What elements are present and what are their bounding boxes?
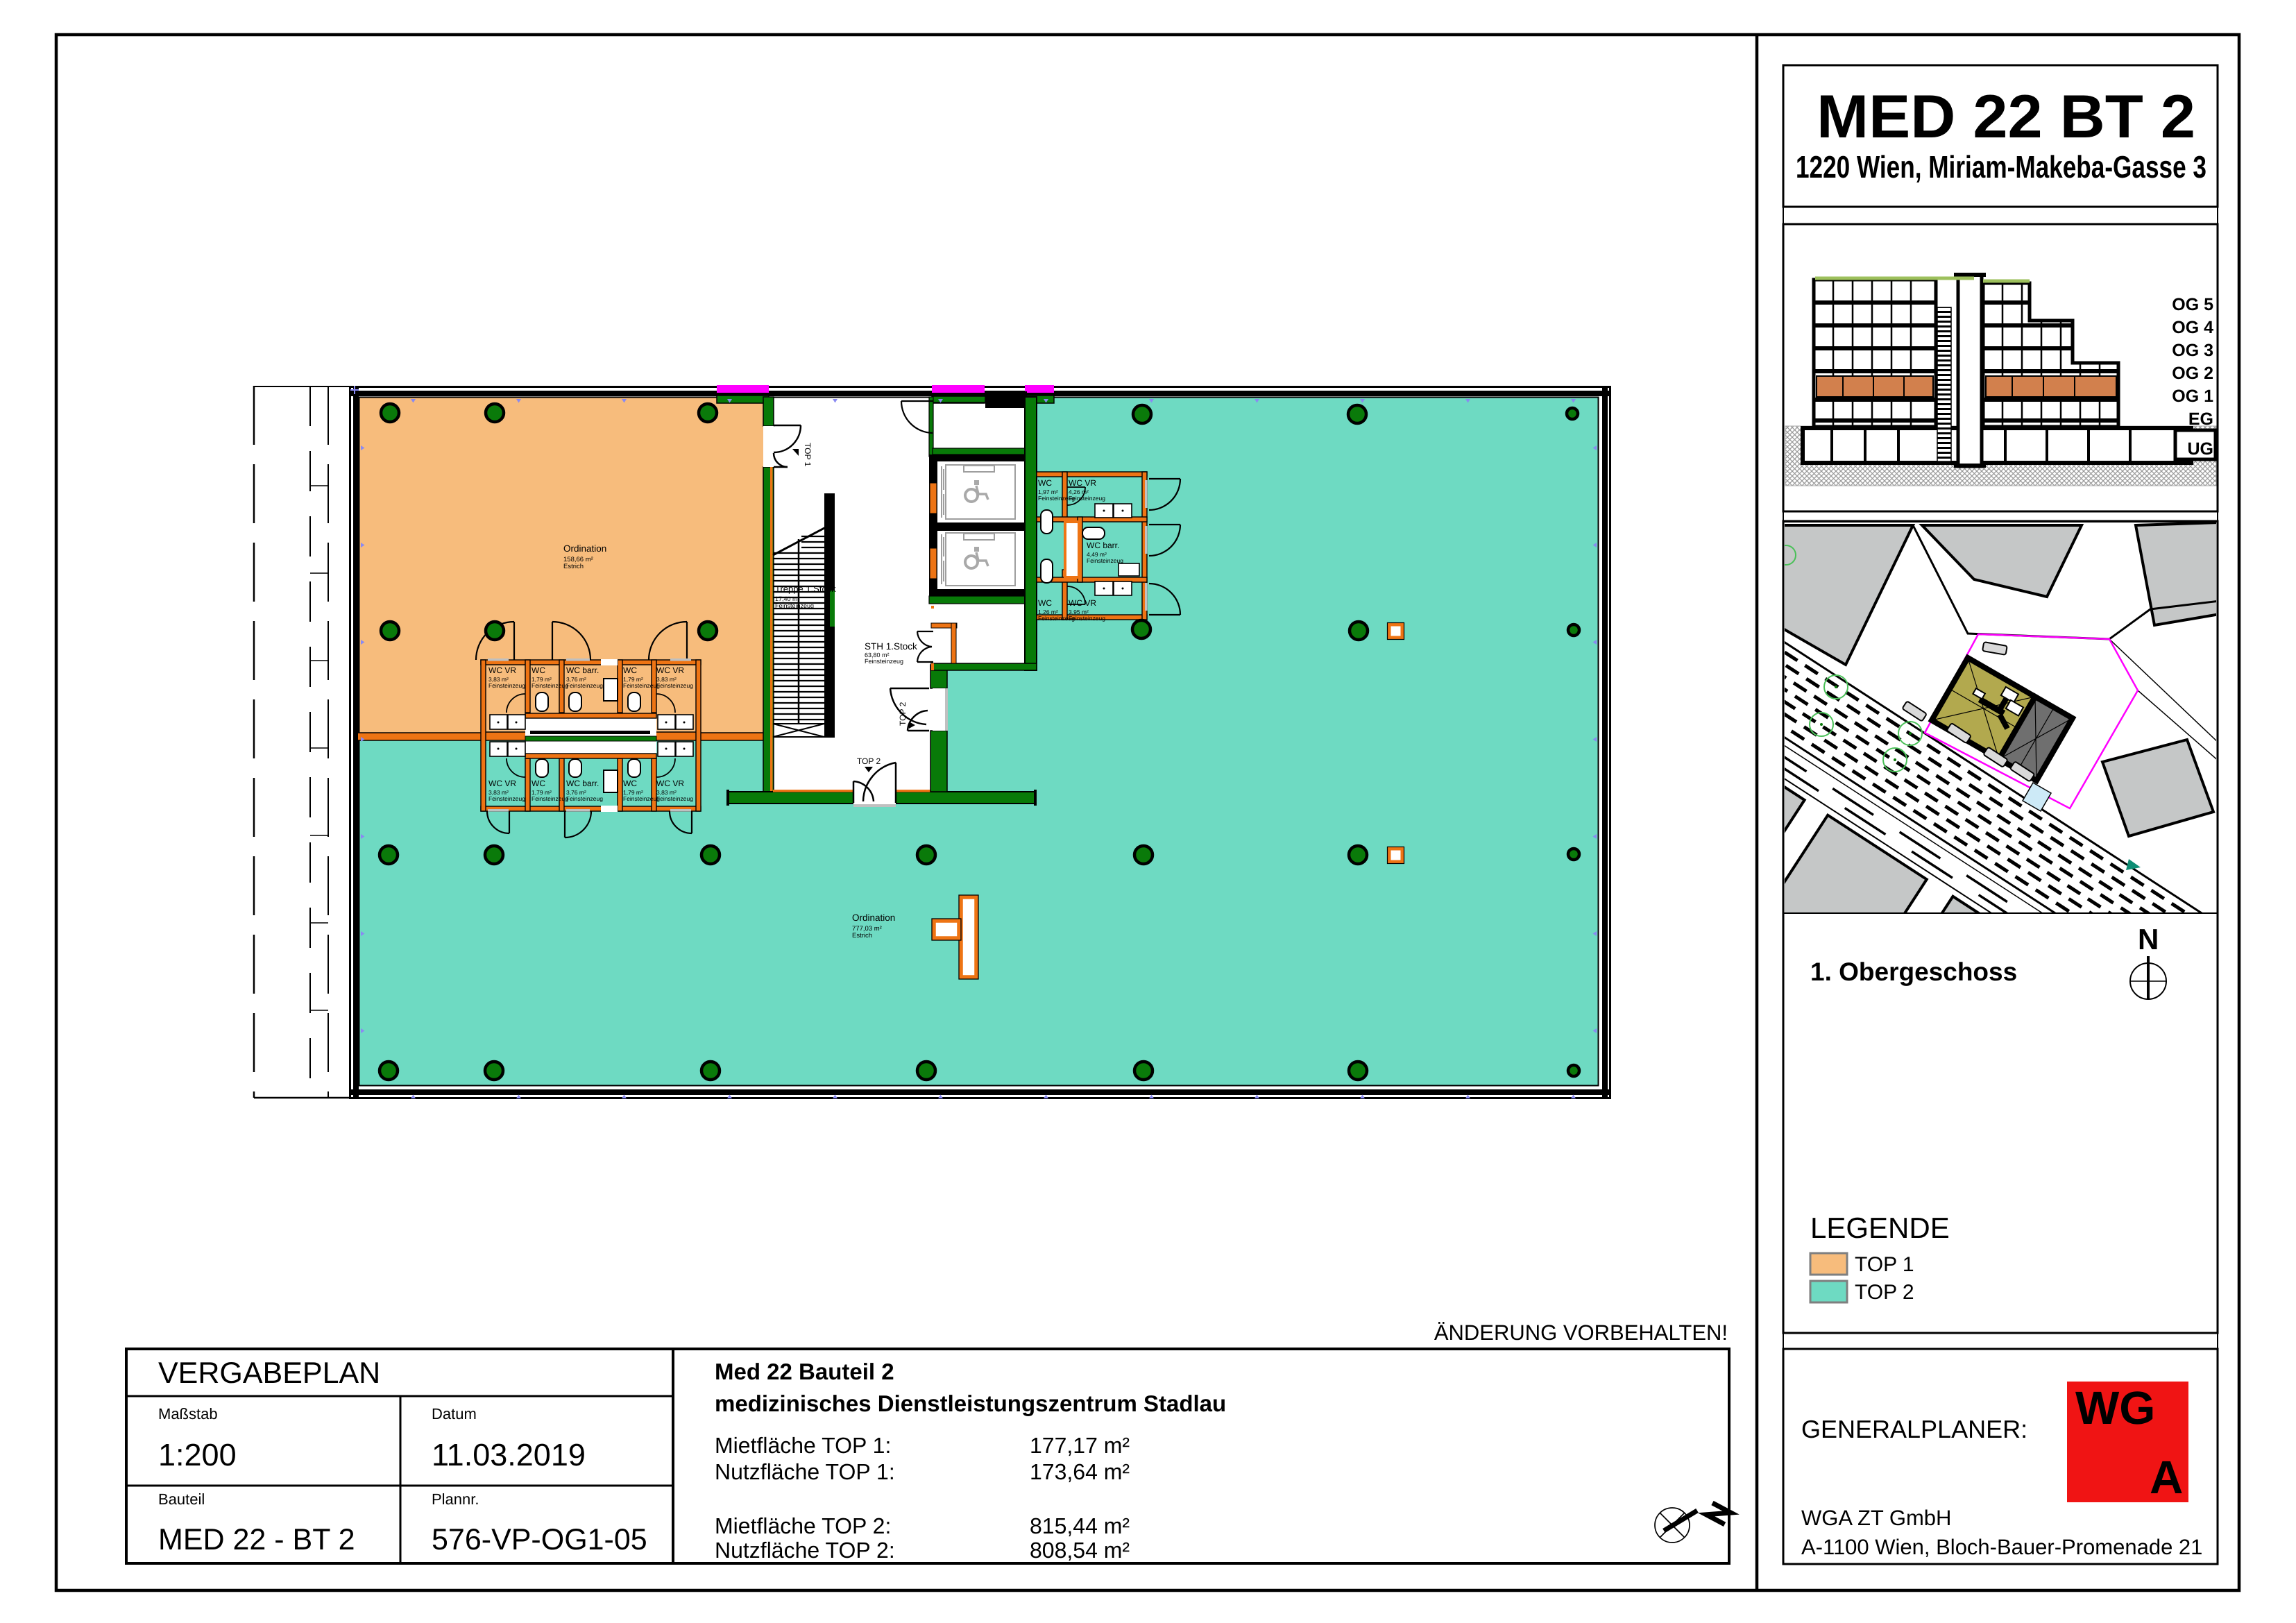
svg-text:Feinsteinzeug: Feinsteinzeug bbox=[1069, 615, 1105, 622]
svg-text:STH 1.Stock: STH 1.Stock bbox=[865, 641, 917, 652]
svg-text:Feinsteinzeug: Feinsteinzeug bbox=[1069, 495, 1105, 502]
svg-text:WC VR: WC VR bbox=[656, 665, 684, 675]
svg-text:WC: WC bbox=[532, 779, 545, 788]
svg-text:WC VR: WC VR bbox=[488, 665, 516, 675]
svg-text:TOP 2: TOP 2 bbox=[898, 702, 908, 726]
svg-text:Maßstab: Maßstab bbox=[158, 1405, 218, 1422]
svg-text:17,40 m²: 17,40 m² bbox=[775, 595, 800, 602]
svg-text:11.03.2019: 11.03.2019 bbox=[432, 1437, 586, 1472]
svg-text:Feinsteinzeug: Feinsteinzeug bbox=[566, 795, 603, 802]
svg-text:Ordination: Ordination bbox=[852, 912, 895, 923]
svg-text:Feinsteinzeug: Feinsteinzeug bbox=[656, 682, 693, 689]
svg-text:1220 Wien, Miriam-Makeba-Gasse: 1220 Wien, Miriam-Makeba-Gasse 3 bbox=[1796, 149, 2206, 185]
svg-text:Plannr.: Plannr. bbox=[432, 1490, 479, 1508]
svg-text:177,17 m²: 177,17 m² bbox=[1030, 1433, 1130, 1458]
svg-text:576-VP-OG1-05: 576-VP-OG1-05 bbox=[432, 1523, 647, 1556]
svg-text:TOP 1: TOP 1 bbox=[1855, 1253, 1914, 1276]
svg-text:Estrich: Estrich bbox=[563, 563, 584, 570]
svg-text:Treppe 1.Stock: Treppe 1.Stock bbox=[775, 584, 836, 594]
svg-text:UG: UG bbox=[2188, 439, 2214, 459]
svg-text:Feinsteinzeug: Feinsteinzeug bbox=[656, 795, 693, 802]
svg-text:WG: WG bbox=[2075, 1382, 2155, 1434]
svg-text:TOP 2: TOP 2 bbox=[1855, 1281, 1914, 1304]
svg-text:WC: WC bbox=[532, 665, 545, 675]
svg-text:WC barr.: WC barr. bbox=[566, 779, 599, 788]
svg-text:A-1100 Wien, Bloch-Bauer-Prome: A-1100 Wien, Bloch-Bauer-Promenade 21 bbox=[1801, 1535, 2202, 1559]
svg-text:Nutzfläche TOP 2:: Nutzfläche TOP 2: bbox=[715, 1538, 895, 1563]
svg-text:WC VR: WC VR bbox=[488, 779, 516, 788]
svg-text:OG 5: OG 5 bbox=[2172, 295, 2213, 314]
svg-text:WC: WC bbox=[623, 665, 637, 675]
svg-text:ÄNDERUNG VORBEHALTEN!: ÄNDERUNG VORBEHALTEN! bbox=[1434, 1320, 1728, 1345]
svg-text:Bauteil: Bauteil bbox=[158, 1490, 205, 1508]
svg-text:OG 4: OG 4 bbox=[2172, 318, 2213, 337]
svg-text:TOP 2: TOP 2 bbox=[857, 756, 881, 766]
svg-text:WC barr.: WC barr. bbox=[566, 665, 599, 675]
svg-text:WC VR: WC VR bbox=[1069, 478, 1096, 488]
svg-text:N: N bbox=[2138, 923, 2159, 955]
svg-text:Feinsteinzeug: Feinsteinzeug bbox=[566, 682, 603, 689]
svg-text:WC barr.: WC barr. bbox=[1087, 541, 1119, 550]
svg-text:WGA ZT GmbH: WGA ZT GmbH bbox=[1801, 1506, 1951, 1530]
svg-text:medizinisches Dienstleistungsz: medizinisches Dienstleistungszentrum Sta… bbox=[715, 1391, 1226, 1416]
svg-text:OG 1: OG 1 bbox=[2172, 386, 2213, 406]
svg-text:1:200: 1:200 bbox=[158, 1437, 237, 1472]
svg-text:WC VR: WC VR bbox=[1069, 598, 1096, 608]
svg-text:Mietfläche TOP 1:: Mietfläche TOP 1: bbox=[715, 1433, 891, 1458]
svg-text:Feinsteinzeug: Feinsteinzeug bbox=[532, 682, 568, 689]
svg-text:Feinsteinzeug: Feinsteinzeug bbox=[1087, 557, 1123, 564]
svg-text:LEGENDE: LEGENDE bbox=[1810, 1212, 1950, 1244]
svg-text:815,44 m²: 815,44 m² bbox=[1030, 1513, 1130, 1538]
svg-text:808,54 m²: 808,54 m² bbox=[1030, 1538, 1130, 1563]
svg-text:Med 22 Bauteil 2: Med 22 Bauteil 2 bbox=[715, 1359, 894, 1384]
svg-text:1. Obergeschoss: 1. Obergeschoss bbox=[1810, 958, 2017, 986]
svg-text:Feinsteinzeug: Feinsteinzeug bbox=[623, 795, 660, 802]
svg-text:MED 22 - BT 2: MED 22 - BT 2 bbox=[158, 1523, 355, 1556]
svg-text:MED 22 BT 2: MED 22 BT 2 bbox=[1817, 82, 2195, 151]
svg-text:Datum: Datum bbox=[432, 1405, 477, 1422]
svg-text:WC VR: WC VR bbox=[656, 779, 684, 788]
svg-text:VERGABEPLAN: VERGABEPLAN bbox=[158, 1357, 380, 1390]
svg-text:Feinsteinzeug: Feinsteinzeug bbox=[488, 795, 525, 802]
svg-text:Feinsteinzeug: Feinsteinzeug bbox=[775, 602, 814, 609]
svg-text:TOP 1: TOP 1 bbox=[803, 443, 813, 467]
svg-text:Nutzfläche TOP 1:: Nutzfläche TOP 1: bbox=[715, 1459, 895, 1484]
svg-text:Estrich: Estrich bbox=[852, 932, 872, 940]
svg-text:GENERALPLANER:: GENERALPLANER: bbox=[1801, 1415, 2027, 1443]
svg-text:WC: WC bbox=[1038, 598, 1052, 608]
svg-text:OG 2: OG 2 bbox=[2172, 364, 2213, 383]
svg-text:Feinsteinzeug: Feinsteinzeug bbox=[865, 658, 903, 665]
svg-text:EG: EG bbox=[2188, 409, 2213, 429]
svg-text:Feinsteinzeug: Feinsteinzeug bbox=[532, 795, 568, 802]
svg-text:WC: WC bbox=[1038, 478, 1052, 488]
svg-text:OG 3: OG 3 bbox=[2172, 341, 2213, 360]
svg-text:Feinsteinzeug: Feinsteinzeug bbox=[488, 682, 525, 689]
svg-text:173,64 m²: 173,64 m² bbox=[1030, 1459, 1130, 1484]
svg-text:A: A bbox=[2150, 1452, 2183, 1504]
svg-text:Mietfläche TOP 2:: Mietfläche TOP 2: bbox=[715, 1513, 891, 1538]
svg-text:Ordination: Ordination bbox=[563, 543, 606, 554]
svg-text:Feinsteinzeug: Feinsteinzeug bbox=[623, 682, 660, 689]
svg-text:WC: WC bbox=[623, 779, 637, 788]
